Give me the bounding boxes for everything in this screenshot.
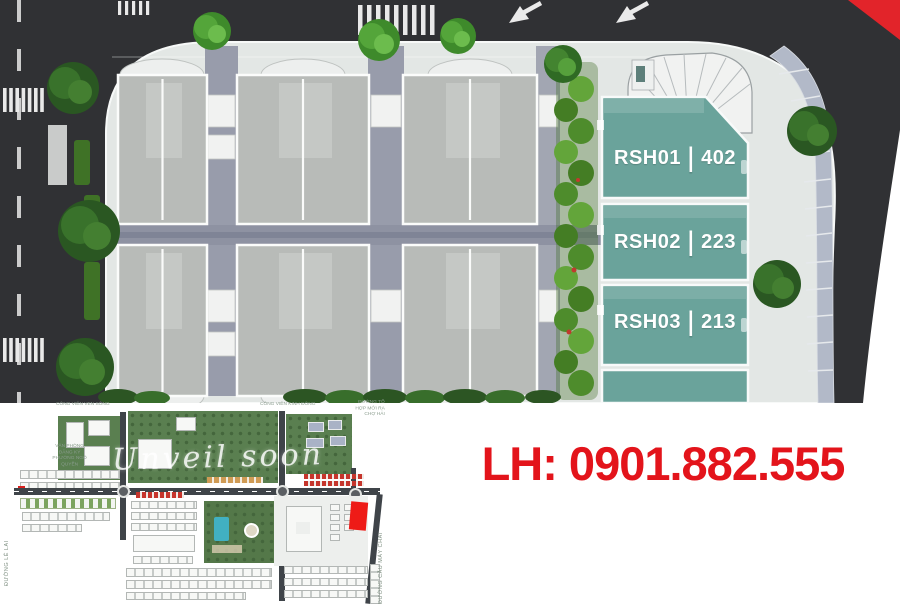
tree: [47, 62, 99, 114]
minimap-building: [330, 514, 340, 521]
block-code: RSH01: [614, 147, 681, 170]
minimap-building: [328, 420, 342, 430]
warehouse-block: [237, 75, 369, 224]
minimap-red-roofs: [136, 492, 184, 498]
minimap-building: [176, 417, 196, 431]
minimap-right-cluster: [274, 496, 368, 566]
block-code: RSH03: [614, 311, 681, 334]
block-label-rsh03[interactable]: RSH03 | 213: [602, 307, 748, 337]
tree: [358, 19, 400, 61]
minimap-building-notch: [296, 522, 310, 534]
hedge-strip: [554, 56, 598, 400]
minimap-label-park-left: CÔNG VIÊN VEN SÔNG: [56, 402, 110, 408]
warehouse-block: [118, 75, 207, 224]
minimap-block: [126, 568, 272, 602]
minimap-label-note-right: ĐƯỜNG TỔ HỢP MỚI RA CHỢ HẢI: [348, 400, 385, 418]
block-units: 223: [701, 231, 736, 254]
contact-phone[interactable]: LH: 0901.882.555: [432, 428, 894, 498]
minimap-shophouse-row: [20, 498, 116, 509]
minimap-watermark: Unveil soon: [49, 430, 386, 485]
block-units: 213: [701, 311, 736, 334]
minimap-shophouse-row: [284, 578, 368, 586]
separator-bar: |: [688, 142, 694, 173]
minimap-block: [284, 564, 380, 604]
minimap-building: [330, 524, 340, 531]
minimap-main-road: [14, 488, 380, 495]
tree: [787, 106, 837, 156]
site-plan-rendering: [0, 0, 900, 403]
minimap-label-road-right: ĐƯỜNG CẦU MÁY CHAI: [378, 524, 384, 604]
tree: [58, 200, 120, 262]
site-plan-screenshot: RSH01 | 402 RSH02 | 223 RSH03 | 213 LH: …: [0, 0, 900, 616]
minimap-shophouse-row: [284, 590, 368, 598]
minimap-shophouse-row: [126, 568, 272, 577]
minimap-shophouse-row: [126, 580, 272, 589]
minimap-building: [330, 504, 340, 511]
road-dash-line: [14, 491, 380, 492]
tree: [544, 45, 582, 83]
minimap-red-roofs: [304, 481, 364, 486]
block-code: RSH02: [614, 231, 681, 254]
minimap-roundabout: [117, 485, 130, 498]
block-units: 402: [701, 147, 736, 170]
warehouse-block: [403, 245, 537, 396]
tree: [193, 12, 231, 50]
minimap-pool: [214, 517, 229, 541]
minimap-shophouse-row: [126, 592, 246, 600]
minimap-shophouse-row: [22, 524, 82, 532]
block-label-rsh01[interactable]: RSH01 | 402: [602, 143, 748, 173]
minimap-building: [88, 420, 110, 436]
overview-minimap: Unveil soon CÔNG VIÊN VEN SÔNG CÔNG VIÊN…: [8, 408, 390, 610]
minimap-label-road-left: ĐƯỜNG LÊ LAI: [4, 516, 10, 586]
tree: [56, 338, 114, 396]
minimap-block: [131, 501, 201, 567]
warehouse-block: [403, 75, 537, 224]
minimap-shophouse-row: [131, 512, 197, 520]
block-label-rsh02[interactable]: RSH02 | 223: [602, 227, 748, 257]
minimap-deck: [212, 545, 242, 553]
separator-bar: |: [688, 226, 694, 257]
minimap-shophouse-row: [22, 512, 110, 521]
minimap-amenity-park: [204, 501, 276, 563]
minimap-fountain: [244, 523, 259, 538]
minimap-building: [330, 534, 340, 541]
warehouse-block: [118, 245, 207, 396]
minimap-shophouse-row: [133, 556, 193, 564]
tree: [753, 260, 801, 308]
separator-bar: |: [688, 306, 694, 337]
minimap-highlighted-unit: [349, 501, 368, 530]
minimap-building: [133, 535, 195, 552]
teal-block-partial: [602, 370, 748, 403]
warehouse-block: [237, 245, 369, 396]
minimap-label-office: VĂN PHÒNG ĐĂNG KÝ PHƯỜNG NGÔ QUYỀN: [48, 444, 91, 468]
minimap-shophouse-row: [131, 523, 197, 531]
minimap-shophouse-row: [284, 566, 368, 574]
minimap-shophouse-row: [131, 501, 197, 509]
minimap-label-park-right: CÔNG VIÊN KINH ĐÔNG: [260, 402, 315, 408]
tree: [440, 18, 476, 54]
